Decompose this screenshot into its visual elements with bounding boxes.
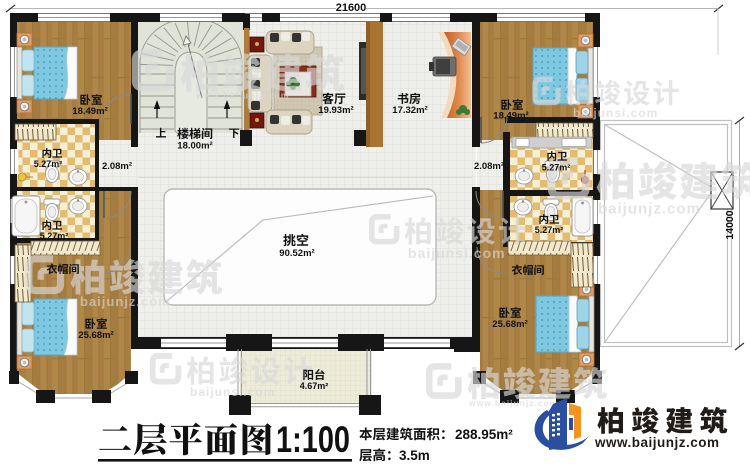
svg-text:www.baijunjz.com: www.baijunjz.com xyxy=(468,398,558,408)
svg-text:1:100: 1:100 xyxy=(276,419,350,460)
svg-text:18.00m²: 18.00m² xyxy=(177,141,212,152)
svg-text:baijunjz.com: baijunjz.com xyxy=(80,294,171,309)
svg-text:www.baijunjz.com: www.baijunjz.com xyxy=(594,435,720,450)
svg-text:5.27m²: 5.27m² xyxy=(34,159,63,169)
svg-text:17.32m²: 17.32m² xyxy=(392,105,427,116)
svg-text:baijunsi.com: baijunsi.com xyxy=(190,385,275,399)
svg-text:14000: 14000 xyxy=(724,210,736,239)
svg-text:18.49m²: 18.49m² xyxy=(72,106,107,117)
svg-text:4.67m²: 4.67m² xyxy=(300,381,329,391)
svg-text:baijunsi.com: baijunsi.com xyxy=(408,245,506,261)
svg-text:19.93m²: 19.93m² xyxy=(318,105,353,116)
svg-text:5.27m²: 5.27m² xyxy=(542,163,571,173)
svg-text:2.08m²: 2.08m² xyxy=(102,161,132,172)
svg-text:2.08m²: 2.08m² xyxy=(474,161,504,172)
svg-text:baijunsi.com: baijunsi.com xyxy=(573,106,658,120)
svg-text:baijunjz.com: baijunjz.com xyxy=(598,200,701,217)
svg-text:25.68m²: 25.68m² xyxy=(78,330,113,341)
svg-text:90.52m²: 90.52m² xyxy=(279,248,314,259)
svg-text:3.5m: 3.5m xyxy=(399,448,430,463)
svg-text:288.95m²: 288.95m² xyxy=(455,427,513,442)
svg-text:5.27m²: 5.27m² xyxy=(535,225,564,235)
svg-text:18.49m²: 18.49m² xyxy=(493,111,528,122)
svg-text:www.baijunjz.com: www.baijunjz.com xyxy=(195,90,290,100)
svg-text:25.68m²: 25.68m² xyxy=(492,319,527,330)
svg-text:21600: 21600 xyxy=(336,2,367,14)
svg-text:5.27m²: 5.27m² xyxy=(40,231,69,241)
